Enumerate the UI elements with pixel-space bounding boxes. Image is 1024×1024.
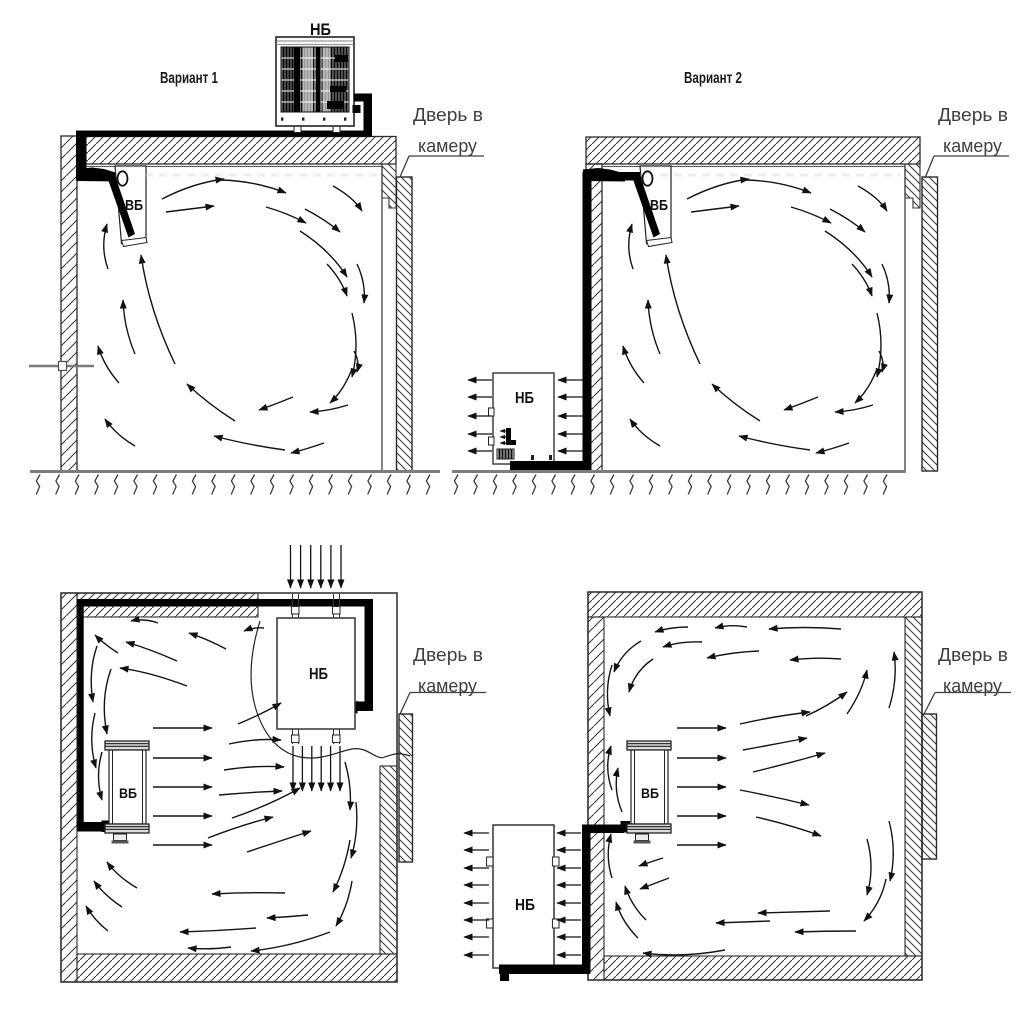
svg-text:камеру: камеру <box>418 135 478 156</box>
svg-text:Дверь в: Дверь в <box>938 644 1008 665</box>
svg-text:Дверь в: Дверь в <box>413 644 483 665</box>
svg-text:Дверь в: Дверь в <box>938 104 1008 125</box>
svg-text:НБ: НБ <box>310 20 331 39</box>
svg-text:ВБ: ВБ <box>119 785 137 801</box>
svg-text:Дверь в: Дверь в <box>413 104 483 125</box>
svg-text:Вариант 2: Вариант 2 <box>684 70 742 87</box>
svg-text:Вариант 1: Вариант 1 <box>160 70 218 87</box>
svg-text:камеру: камеру <box>943 135 1003 156</box>
svg-text:НБ: НБ <box>515 897 535 914</box>
svg-text:ВБ: ВБ <box>641 785 659 801</box>
svg-text:НБ: НБ <box>309 666 328 683</box>
svg-text:ВБ: ВБ <box>650 197 668 214</box>
svg-text:ВБ: ВБ <box>125 197 143 214</box>
svg-text:НБ: НБ <box>515 390 534 407</box>
